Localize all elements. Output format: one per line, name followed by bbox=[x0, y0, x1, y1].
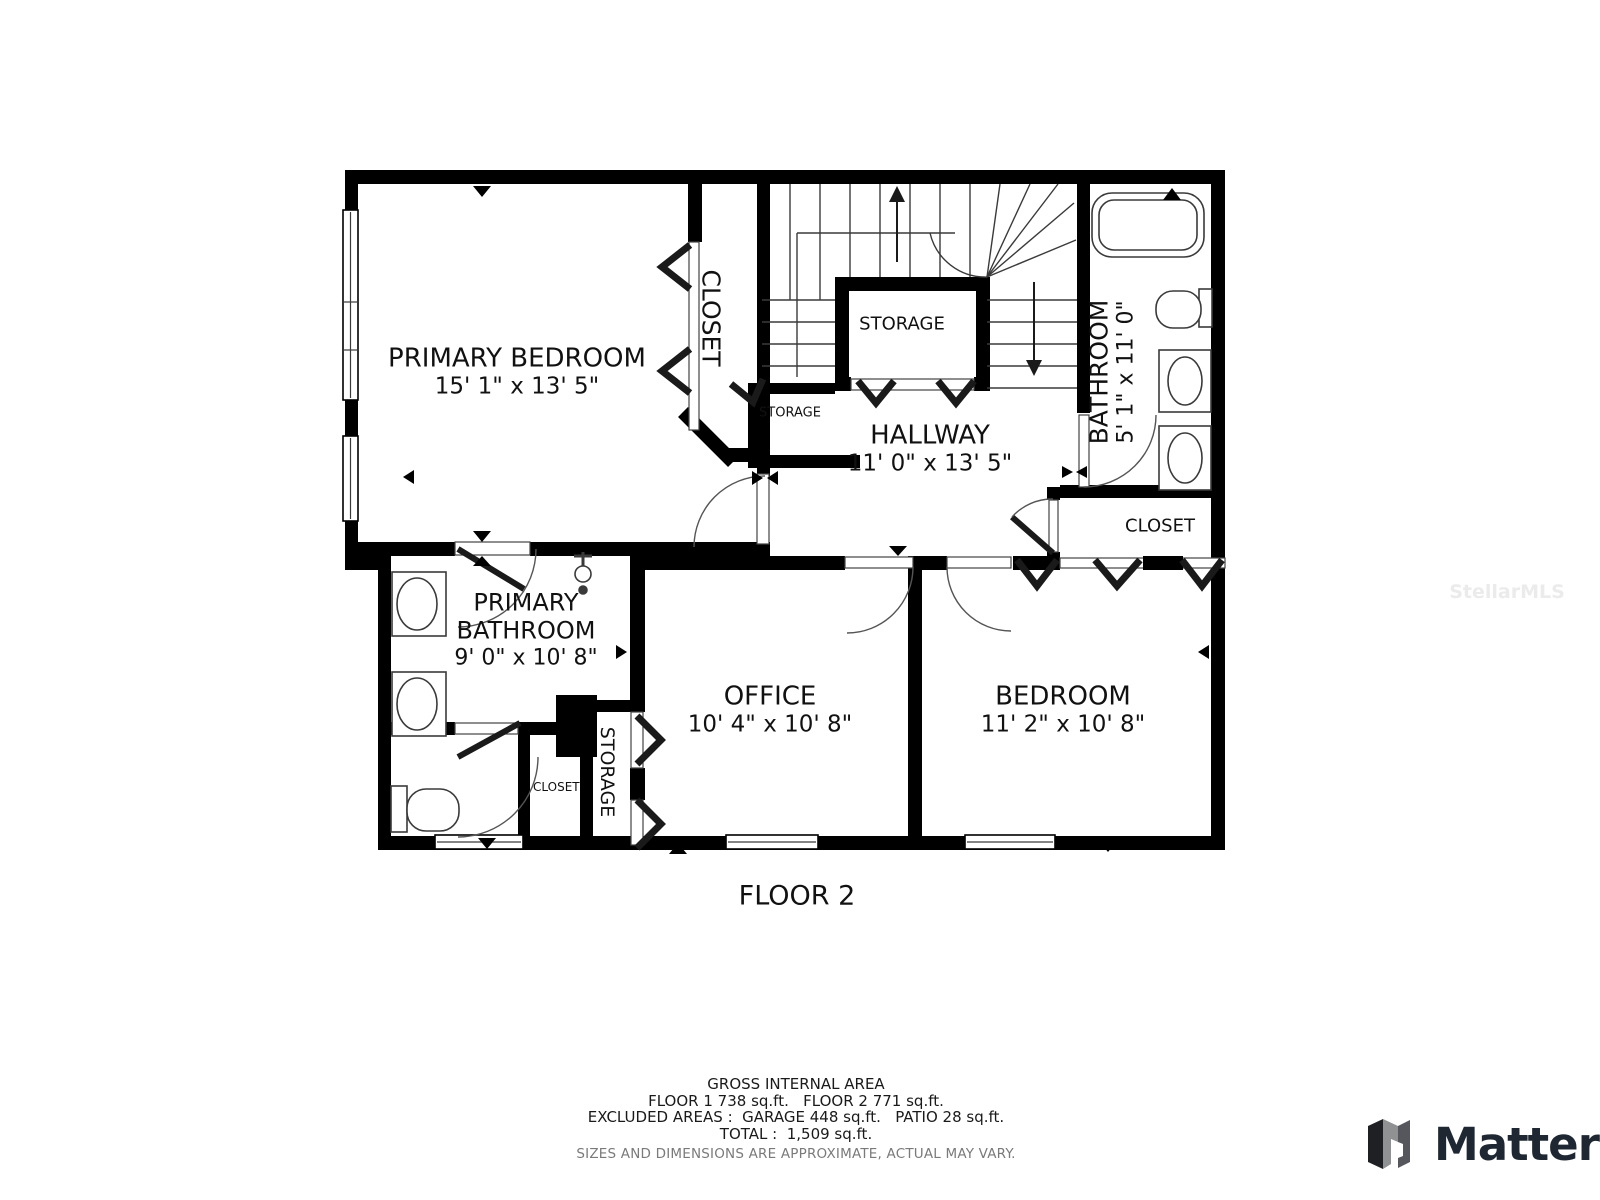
room-label-primary-bedroom: PRIMARY BEDROOM 15' 1" x 13' 5" bbox=[388, 344, 646, 401]
matterport-logo-icon bbox=[1356, 1112, 1420, 1176]
office-dims: 10' 4" x 10' 8" bbox=[688, 712, 852, 739]
floor-areas: FLOOR 1 738 sq.ft. FLOOR 2 771 sq.ft. bbox=[296, 1093, 1296, 1110]
bathroom-name: BATHROOM bbox=[1085, 300, 1114, 445]
bedroom-dims: 11' 2" x 10' 8" bbox=[981, 712, 1145, 739]
disclaimer-text: SIZES AND DIMENSIONS ARE APPROXIMATE, AC… bbox=[296, 1146, 1296, 1162]
room-label-storage-stairs: STORAGE bbox=[859, 315, 945, 336]
bedroom-name: BEDROOM bbox=[981, 682, 1145, 712]
primary-bedroom-dims: 15' 1" x 13' 5" bbox=[388, 374, 646, 401]
area-summary: GROSS INTERNAL AREA FLOOR 1 738 sq.ft. F… bbox=[296, 1076, 1296, 1162]
door-track-office bbox=[845, 557, 913, 568]
room-label-bedroom: BEDROOM 11' 2" x 10' 8" bbox=[981, 682, 1145, 739]
room-label-bathroom: BATHROOM 5' 1" x 11' 0" bbox=[1085, 300, 1140, 445]
matterport-logo-text: Matterport bbox=[1434, 1118, 1600, 1171]
excluded-areas: EXCLUDED AREAS : GARAGE 448 sq.ft. PATIO… bbox=[296, 1109, 1296, 1126]
bifold-track-storage bbox=[851, 379, 974, 390]
door-track-bedroom-hall bbox=[757, 474, 769, 544]
primary-bathroom-dims: 9' 0" x 10' 8" bbox=[454, 645, 597, 671]
bifold-track-closet-bedroom bbox=[1060, 558, 1225, 568]
gross-internal-area-title: GROSS INTERNAL AREA bbox=[296, 1076, 1296, 1093]
door-arc-bedroom-hall bbox=[694, 476, 765, 547]
room-label-storage-small: STORAGE bbox=[759, 405, 821, 420]
bathroom-dims: 5' 1" x 11' 0" bbox=[1114, 300, 1140, 445]
bifold-closet-top-1 bbox=[662, 245, 690, 289]
floorplan-canvas bbox=[0, 0, 1600, 1200]
room-label-closet-bedroom: CLOSET bbox=[1125, 517, 1195, 538]
primary-bedroom-name: PRIMARY BEDROOM bbox=[388, 344, 646, 374]
door-track-closet-bedroom bbox=[1049, 500, 1058, 552]
bifold-storage-small bbox=[731, 379, 763, 402]
door-arc-closet-bedroom bbox=[1012, 499, 1053, 517]
door-leaf-closet-bedroom bbox=[1012, 517, 1053, 553]
floor-title: FLOOR 2 bbox=[739, 881, 856, 912]
hallway-name: HALLWAY bbox=[848, 421, 1012, 451]
total-area: TOTAL : 1,509 sq.ft. bbox=[296, 1126, 1296, 1143]
toilet-bathroom bbox=[1156, 291, 1201, 328]
door-arc-bedroom bbox=[947, 567, 1011, 631]
primary-bathroom-name-1: PRIMARY bbox=[454, 589, 597, 617]
door-track-bedroom bbox=[947, 557, 1011, 568]
room-label-hallway: HALLWAY 11' 0" x 13' 5" bbox=[848, 421, 1012, 478]
room-label-primary-bathroom: PRIMARY BATHROOM 9' 0" x 10' 8" bbox=[454, 589, 597, 670]
toilet-tank-primary bbox=[391, 786, 407, 832]
primary-bathroom-name-2: BATHROOM bbox=[454, 617, 597, 645]
toilet-primary bbox=[407, 789, 459, 831]
hallway-dims: 11' 0" x 13' 5" bbox=[848, 451, 1012, 478]
bifold-closet-top-2 bbox=[662, 349, 690, 393]
office-name: OFFICE bbox=[688, 682, 852, 712]
door-arc-office bbox=[847, 567, 913, 633]
room-label-storage-office: STORAGE bbox=[596, 727, 618, 817]
room-label-office: OFFICE 10' 4" x 10' 8" bbox=[688, 682, 852, 739]
room-label-closet-top: CLOSET bbox=[697, 269, 726, 366]
stellar-mls-watermark: StellarMLS bbox=[1449, 581, 1565, 603]
matterport-branding: Matterport bbox=[1356, 1112, 1600, 1176]
room-label-closet-small: CLOSET bbox=[533, 780, 581, 794]
